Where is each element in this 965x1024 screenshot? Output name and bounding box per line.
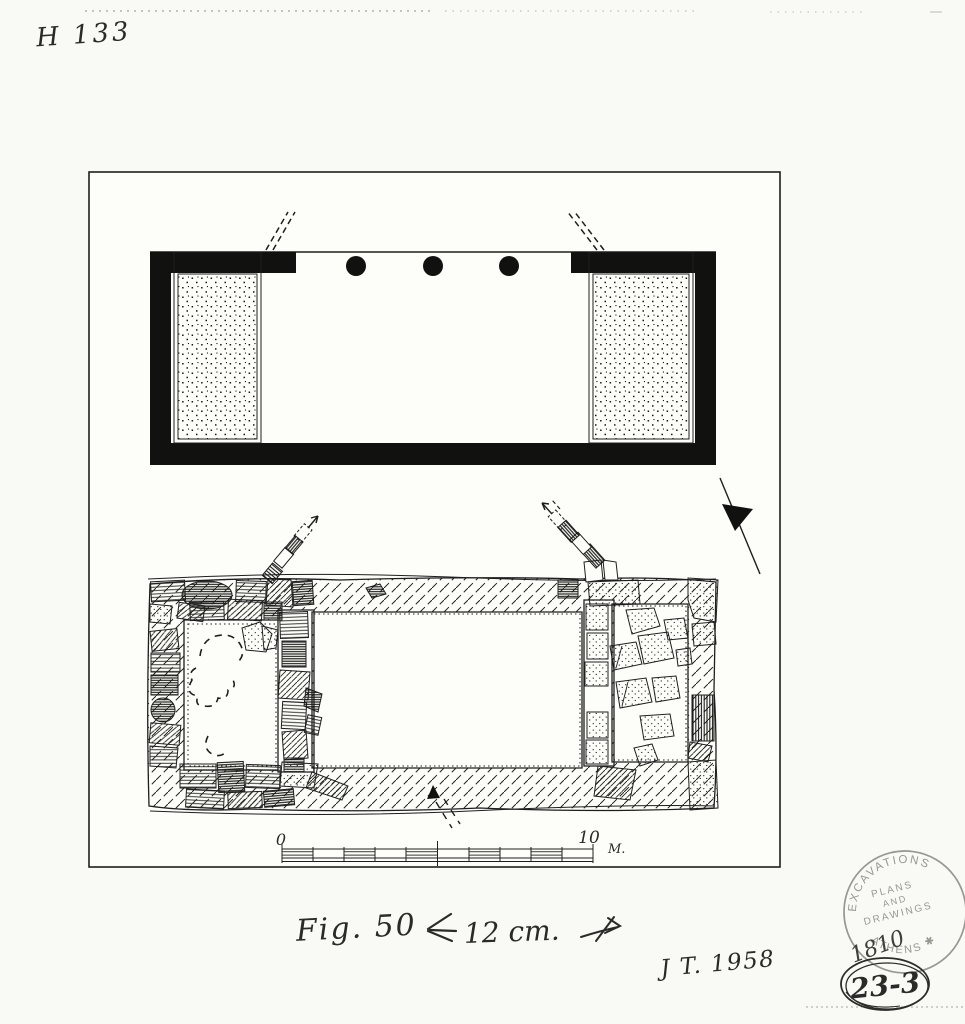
right-stippled-panel <box>589 252 693 443</box>
initials-date: J T. 1958 <box>655 946 776 982</box>
caption: Fig. 50 12 cm. J T. 1958 <box>294 908 776 983</box>
scanned-drawing-sheet: H 133 <box>0 0 965 1024</box>
tag-number: 23-3 <box>847 965 921 1005</box>
archive-stamp: EXCAVATIONS ATHENS ✱ PLANS AND DRAWINGS … <box>828 838 965 987</box>
archaeological-plan-figure: H 133 <box>0 0 965 1024</box>
figure-label: Fig. 50 <box>294 908 418 949</box>
catalog-number-annotation: H 133 <box>34 17 132 54</box>
scale-ten-label: 10 <box>578 828 600 848</box>
left-arrow-icon <box>428 914 456 941</box>
left-stippled-panel <box>174 252 261 443</box>
right-cross-wall-blocks <box>585 604 608 764</box>
size-note: 12 cm. <box>463 914 560 950</box>
scale-unit-label: M. <box>607 842 625 857</box>
page-number-tag: 23-3 <box>841 958 929 1010</box>
right-arrow-icon <box>581 917 620 941</box>
scale-zero-label: 0 <box>276 830 286 849</box>
stamp-number: 1810 <box>847 926 908 969</box>
